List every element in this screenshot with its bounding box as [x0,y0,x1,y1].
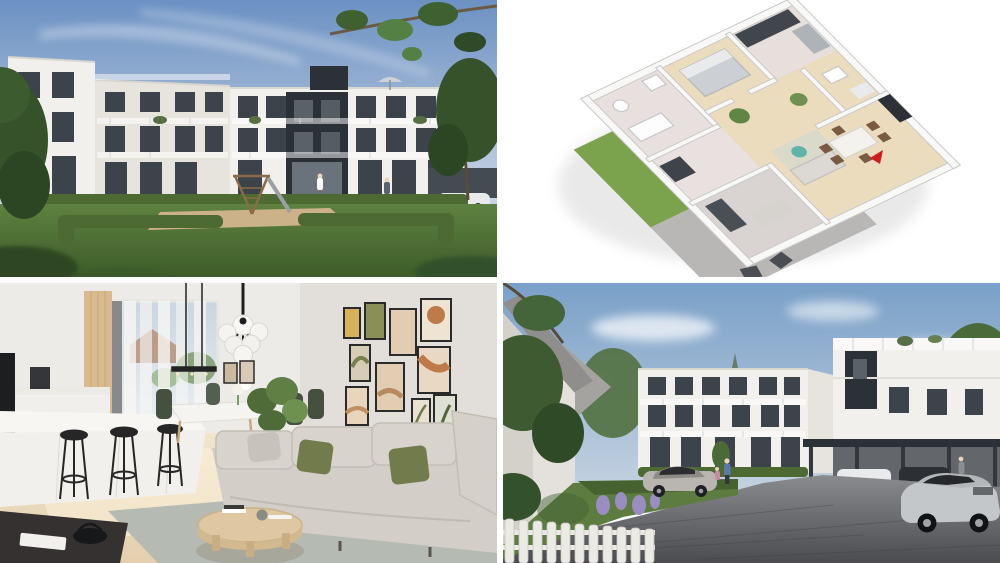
panel-interior-living-room[interactable] [0,283,497,563]
panel-exterior-parking[interactable] [503,283,1000,563]
interior-living-room-image [0,283,497,563]
exterior-parking-image [503,283,1000,563]
dark-penthouse [310,66,348,90]
panel-floor-plan[interactable] [503,0,1000,277]
floor-plan-image [503,0,1000,277]
coffee-table [196,505,304,563]
center-building [638,369,833,477]
property-photo-collage [0,0,1000,563]
coffee-machine [30,367,50,389]
green-pillow-2 [388,445,430,485]
gray-pillow [247,431,282,462]
green-pillow-1 [296,439,334,475]
exterior-courtyard-image [0,0,497,277]
panel-exterior-courtyard[interactable] [0,0,497,277]
